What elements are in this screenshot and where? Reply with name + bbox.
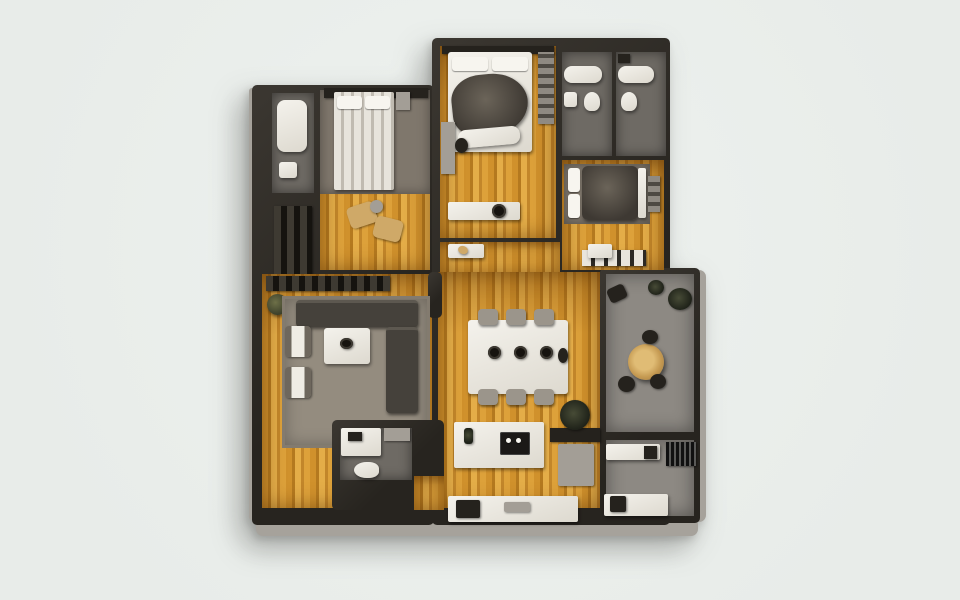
bathtub-tr1 bbox=[564, 66, 602, 83]
coffee-table-decor bbox=[340, 338, 353, 349]
plan bbox=[252, 30, 708, 542]
bathtub-tr2 bbox=[618, 66, 654, 83]
hall-cabinet bbox=[588, 244, 612, 258]
toilet-tr1 bbox=[584, 92, 600, 111]
dining-plate-1 bbox=[488, 346, 501, 359]
bathroom-bl-toilet bbox=[354, 462, 379, 478]
bedroom-right-duvet bbox=[582, 166, 638, 220]
bedroom-right-pillow-2 bbox=[568, 194, 580, 218]
cooktop-knob-2 bbox=[516, 438, 521, 443]
balcony-plant-2 bbox=[648, 280, 664, 295]
balcony-chair-3 bbox=[642, 330, 658, 344]
kitchen-plant bbox=[560, 400, 590, 430]
sink-left bbox=[279, 162, 297, 178]
bedroom-right-sheet bbox=[638, 168, 646, 218]
floor-plan-stage bbox=[0, 0, 960, 600]
utility-vent bbox=[666, 442, 696, 466]
dining-chair-t2 bbox=[506, 309, 526, 325]
sofa-right bbox=[386, 327, 418, 413]
master-desk-chair bbox=[455, 138, 468, 153]
bedroom-right-nightstand bbox=[648, 176, 660, 212]
sofa-top bbox=[296, 300, 418, 327]
utility-door bbox=[644, 446, 657, 459]
kitchen-fridge bbox=[558, 444, 594, 486]
bedroom-left-pillow-2 bbox=[365, 96, 390, 109]
master-closet bbox=[538, 52, 554, 124]
armchair-1 bbox=[285, 326, 311, 357]
balcony-chair-1 bbox=[618, 376, 635, 392]
cooktop-knob-1 bbox=[506, 438, 511, 443]
dining-chair-b3 bbox=[534, 389, 554, 405]
dining-chair-b2 bbox=[506, 389, 526, 405]
bedroom-right-pillow-1 bbox=[568, 168, 580, 192]
bathtub-left bbox=[277, 100, 307, 152]
wall-column-living bbox=[428, 272, 442, 318]
master-pillow-1 bbox=[452, 57, 488, 71]
dining-chair-b1 bbox=[478, 389, 498, 405]
utility-oven bbox=[610, 496, 626, 512]
dining-chair-t1 bbox=[478, 309, 498, 325]
dining-plate-2 bbox=[514, 346, 527, 359]
dining-chair-t3 bbox=[534, 309, 554, 325]
lounge-side-table bbox=[370, 200, 383, 213]
sink-tr1 bbox=[564, 92, 577, 107]
bathroom-bl-doorway bbox=[414, 476, 444, 510]
kitchen-counter-items bbox=[504, 502, 530, 512]
bedroom-left-nightstand bbox=[396, 92, 410, 110]
cabinet-tr2 bbox=[618, 54, 630, 63]
master-dresser bbox=[448, 202, 520, 220]
toilet-tr2 bbox=[621, 92, 637, 111]
living-wall-shelf bbox=[266, 276, 390, 291]
kitchen-cooktop bbox=[500, 432, 530, 455]
armchair-2 bbox=[285, 367, 311, 398]
bedroom-left-pillow-1 bbox=[337, 96, 362, 109]
balcony-plant-1 bbox=[668, 288, 692, 310]
dining-vase bbox=[558, 348, 568, 363]
master-pillow-2 bbox=[492, 57, 528, 71]
bathroom-bl-counter bbox=[384, 428, 410, 441]
master-basin bbox=[492, 204, 506, 218]
island-bottle bbox=[464, 428, 473, 444]
balcony-chair-2 bbox=[650, 374, 666, 389]
bathroom-bl-shower-item bbox=[348, 432, 362, 441]
kitchen-dark-counter bbox=[550, 428, 600, 442]
kitchen-sink bbox=[456, 500, 480, 518]
master-desk bbox=[441, 122, 455, 174]
dining-plate-3 bbox=[540, 346, 553, 359]
